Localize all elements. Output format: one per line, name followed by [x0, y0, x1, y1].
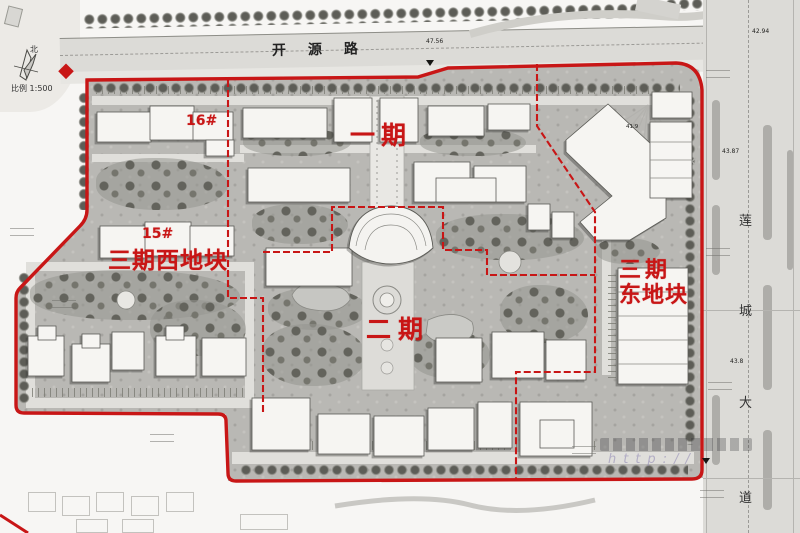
spot-elevation: 42.94: [752, 28, 769, 35]
context-house: [96, 492, 124, 512]
phase3-east-line2: 东地块: [619, 283, 688, 308]
context-house: [122, 519, 154, 533]
entrance-marker: [58, 64, 74, 80]
context-house: [62, 496, 90, 516]
watermark-text-smudge: [600, 438, 752, 451]
survey-annotation: [52, 300, 76, 308]
survey-annotation: [706, 70, 730, 78]
phase3-east-line1: 三期: [619, 258, 688, 283]
context-road-bottom: [335, 499, 595, 511]
spot-elevation: 43.8: [730, 358, 743, 365]
spot-elevation: 41.9: [626, 124, 638, 130]
building-16-label: 16#: [186, 113, 217, 129]
site-plan-canvas: 开源路 莲 城 大 道: [0, 0, 800, 533]
scale-label: 比例 1:500: [11, 83, 53, 94]
spot-elevation: 47.56: [426, 38, 443, 45]
context-house: [131, 496, 159, 516]
survey-annotation: [572, 446, 596, 454]
building-15-label: 15#: [142, 226, 173, 242]
survey-annotation: [10, 228, 34, 236]
phase2-label: 二期: [366, 316, 430, 345]
phase1-label: 一期: [350, 122, 412, 151]
context-house: [28, 492, 56, 512]
phase3-east-label: 三期 东地块: [619, 258, 688, 309]
clubhouse-fan: [349, 206, 433, 264]
boundary-fragment-corner: [0, 515, 28, 533]
survey-annotation: [150, 434, 174, 442]
entrance-arrow: [702, 458, 710, 464]
spot-elevation: 43.87: [722, 148, 739, 155]
survey-annotation: [708, 382, 732, 390]
north-label: 北: [30, 44, 38, 55]
entrance-arrow: [426, 60, 434, 66]
watermark-url: http://: [608, 452, 697, 467]
context-house: [76, 519, 108, 533]
phase3-west-label: 三期西地块: [108, 248, 228, 274]
survey-annotation: [706, 248, 730, 256]
context-house: [240, 514, 288, 530]
survey-annotation: [700, 490, 724, 498]
context-house: [166, 492, 194, 512]
